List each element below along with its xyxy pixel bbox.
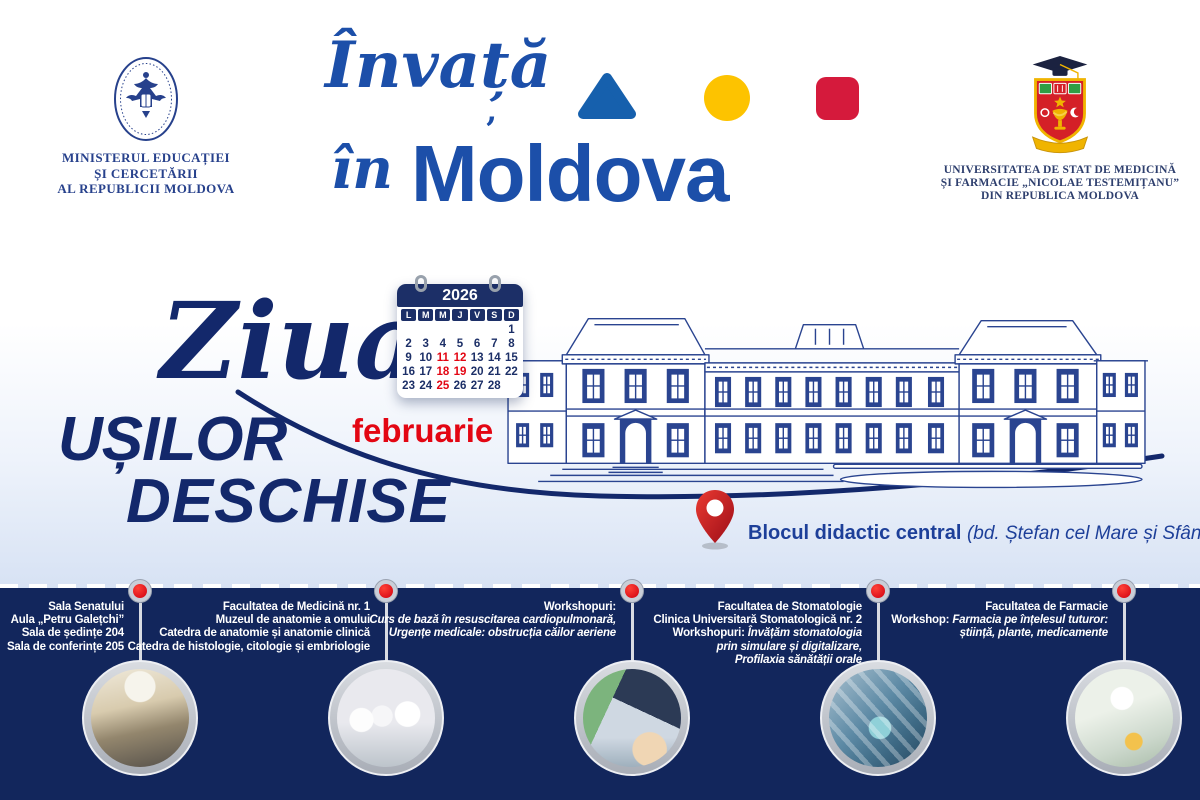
circle-icon: [704, 75, 750, 121]
timeline-text-line: Profilaxia sănătății orale: [653, 654, 862, 667]
pharmacy-workshop-photo: [1066, 660, 1182, 776]
calendar-day-header: D: [504, 309, 519, 321]
cpr-workshop-photo: [574, 660, 690, 776]
calendar-day: 20: [470, 365, 485, 379]
calendar-empty-cell: [504, 379, 519, 393]
event-script-ziua: Ziua: [160, 278, 423, 403]
calendar-day: 3: [418, 337, 433, 351]
calendar-empty-cell: [452, 323, 467, 337]
photo-image: [829, 669, 927, 767]
timeline-text-block: Facultatea de FarmacieWorkshop: Farmacia…: [891, 601, 1108, 641]
photo-image: [337, 669, 435, 767]
calendar: 2026 LMMJVSD 123456789101112131415161718…: [397, 284, 523, 398]
calendar-empty-cell: [401, 323, 416, 337]
timeline-connector: [631, 603, 634, 661]
calendar-day: 12: [452, 351, 467, 365]
calendar-day: 6: [470, 337, 485, 351]
calendar-day: 17: [418, 365, 433, 379]
invata-in-moldova-logo: Învață în ’ Moldova: [325, 38, 885, 238]
calendar-day: 2: [401, 337, 416, 351]
triangle-icon: [577, 72, 637, 120]
calendar-day: 1: [504, 323, 519, 337]
timeline-text-line: Curs de bază în resuscitarea cardiopulmo…: [369, 614, 616, 627]
timeline-dot: [374, 579, 398, 603]
calendar-spiral-icon: [415, 275, 427, 292]
calendar-day: 27: [470, 379, 485, 393]
timeline-text-line: Sala de conferințe 205: [7, 641, 124, 654]
calendar-day: 28: [487, 379, 502, 393]
calendar-day-header: M: [435, 309, 450, 321]
calendar-day: 10: [418, 351, 433, 365]
timeline-dot: [620, 579, 644, 603]
timeline-dot: [866, 579, 890, 603]
university-name-line: UNIVERSITATEA DE STAT DE MEDICINĂ: [940, 164, 1180, 177]
timeline-text-line: Workshopuri: Învățăm stomatologia: [653, 627, 862, 640]
calendar-day: 19: [452, 365, 467, 379]
square-icon: [816, 77, 859, 120]
timeline-dot: [1112, 579, 1136, 603]
photo-image: [1075, 669, 1173, 767]
timeline-text-block: Facultatea de Medicină nr. 1Muzeul de an…: [128, 601, 370, 654]
calendar-day: 11: [435, 351, 450, 365]
location-pin-icon: [692, 488, 738, 550]
timeline-connector: [1123, 603, 1126, 661]
event-month: februarie: [352, 412, 493, 450]
ministry-name-line: ȘI CERCETĂRII: [36, 166, 256, 182]
university-block: UNIVERSITATEA DE STAT DE MEDICINĂ ȘI FAR…: [940, 54, 1180, 203]
calendar-day-header: L: [401, 309, 416, 321]
calendar-day: 21: [487, 365, 502, 379]
calendar-empty-cell: [418, 323, 433, 337]
calendar-day: 23: [401, 379, 416, 393]
calendar-day-header: V: [470, 309, 485, 321]
calendar-day: 13: [470, 351, 485, 365]
timeline-text-line: Facultatea de Medicină nr. 1: [128, 601, 370, 614]
calendar-day: 16: [401, 365, 416, 379]
calendar-day: 24: [418, 379, 433, 393]
timeline-dot: [128, 579, 152, 603]
calendar-day: 14: [487, 351, 502, 365]
calendar-day: 7: [487, 337, 502, 351]
lecture-hall-photo: [82, 660, 198, 776]
timeline-text-line: Urgențe medicale: obstrucția căilor aeri…: [369, 627, 616, 640]
calendar-day: 5: [452, 337, 467, 351]
location-address: (bd. Ștefan cel Mare și Sfânt, 165): [967, 523, 1200, 544]
event-title-usilor: UȘILOR: [58, 404, 286, 475]
calendar-card: 2026 LMMJVSD 123456789101112131415161718…: [397, 284, 523, 398]
calendar-spiral-icon: [489, 275, 501, 292]
university-name-line: DIN REPUBLICA MOLDOVA: [940, 190, 1180, 203]
timeline-text-line: Catedra de histologie, citologie și embr…: [128, 641, 370, 654]
photo-image: [583, 669, 681, 767]
calendar-day: 26: [452, 379, 467, 393]
timeline-text-line: Muzeul de anatomie a omului: [128, 614, 370, 627]
ministry-block: MINISTERUL EDUCAȚIEI ȘI CERCETĂRII AL RE…: [36, 56, 256, 197]
timeline-text-block: Facultatea de StomatologieClinica Univer…: [653, 601, 862, 667]
event-title-deschise: DESCHISE: [126, 466, 451, 537]
timeline-text-block: Sala SenatuluiAula „Petru Galețchi”Sala …: [7, 601, 124, 654]
building-illustration: [502, 292, 1150, 494]
calendar-empty-cell: [487, 323, 502, 337]
calendar-empty-cell: [470, 323, 485, 337]
calendar-grid: 1234567891011121314151617181920212223242…: [397, 322, 523, 398]
timeline-text-line: știință, plante, medicamente: [891, 627, 1108, 640]
location-name: Blocul didactic central: [748, 522, 961, 544]
timeline-connector: [877, 603, 880, 661]
calendar-day-header: M: [418, 309, 433, 321]
university-name-line: ȘI FARMACIE „NICOLAE TESTEMIȚANU”: [940, 177, 1180, 190]
anatomy-lab-photo: [328, 660, 444, 776]
location-text: Blocul didactic central (bd. Ștefan cel …: [748, 522, 1200, 545]
calendar-day: 18: [435, 365, 450, 379]
brand-script-in: în: [331, 136, 393, 202]
calendar-day: 25: [435, 379, 450, 393]
timeline-dashed-line: [0, 584, 1200, 588]
ministry-name-line: MINISTERUL EDUCAȚIEI: [36, 150, 256, 166]
timeline-text-line: Workshop: Farmacia pe înțelesul tuturor:: [891, 614, 1108, 627]
timeline-text-line: Sala Senatului: [7, 601, 124, 614]
timeline-text-line: Facultatea de Stomatologie: [653, 601, 862, 614]
calendar-day: 8: [504, 337, 519, 351]
timeline-text-line: Clinica Universitară Stomatologică nr. 2: [653, 614, 862, 627]
dental-clinic-photo: [820, 660, 936, 776]
calendar-empty-cell: [435, 323, 450, 337]
poster: MINISTERUL EDUCAȚIEI ȘI CERCETĂRII AL RE…: [0, 0, 1200, 800]
timeline-text-line: Facultatea de Farmacie: [891, 601, 1108, 614]
timeline-text-line: prin simulare și digitalizare,: [653, 641, 862, 654]
calendar-day: 4: [435, 337, 450, 351]
photo-image: [91, 669, 189, 767]
timeline-text-line: Catedra de anatomie și anatomie clinică: [128, 627, 370, 640]
brand-script-invata: Învață: [325, 28, 551, 103]
calendar-day-headers: LMMJVSD: [397, 307, 523, 322]
government-seal-icon: [113, 56, 179, 142]
brand-wordmark-moldova: Moldova: [411, 128, 728, 220]
timeline-text-block: Workshopuri:Curs de bază în resuscitarea…: [369, 601, 616, 641]
timeline-text-line: Sala de ședințe 204: [7, 627, 124, 640]
calendar-day: 22: [504, 365, 519, 379]
calendar-day-header: S: [487, 309, 502, 321]
calendar-day: 15: [504, 351, 519, 365]
timeline-text-line: Aula „Petru Galețchi”: [7, 614, 124, 627]
ministry-name-line: AL REPUBLICII MOLDOVA: [36, 181, 256, 197]
timeline-text-line: Workshopuri:: [369, 601, 616, 614]
calendar-day-header: J: [452, 309, 467, 321]
calendar-day: 9: [401, 351, 416, 365]
university-crest-icon: [1027, 54, 1093, 158]
